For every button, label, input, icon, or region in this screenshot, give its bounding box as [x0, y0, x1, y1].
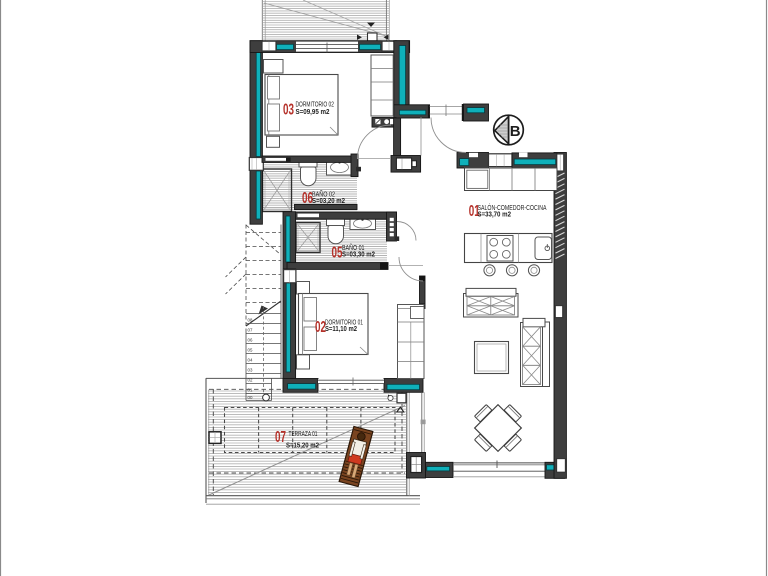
- svg-text:07: 07: [275, 429, 286, 446]
- svg-text:00: 00: [248, 395, 253, 400]
- svg-text:02: 02: [248, 377, 253, 382]
- svg-text:S=03,30 m2: S=03,30 m2: [342, 250, 375, 259]
- svg-text:S=09,95 m2: S=09,95 m2: [296, 107, 330, 116]
- svg-text:01: 01: [248, 387, 253, 392]
- svg-text:05: 05: [248, 347, 253, 352]
- svg-text:TERRAZA 01: TERRAZA 01: [289, 431, 318, 438]
- svg-text:S=11,10 m2: S=11,10 m2: [325, 324, 357, 333]
- svg-text:03: 03: [248, 367, 253, 372]
- svg-text:08: 08: [248, 317, 253, 322]
- svg-text:S=15,20 m2: S=15,20 m2: [286, 440, 319, 449]
- svg-text:03: 03: [283, 102, 294, 119]
- svg-text:B: B: [510, 123, 521, 140]
- svg-text:07: 07: [248, 327, 253, 332]
- svg-text:06: 06: [248, 337, 253, 342]
- svg-text:S=33,70 m2: S=33,70 m2: [478, 209, 512, 218]
- svg-text:04: 04: [248, 357, 253, 362]
- svg-text:S=03,20 m2: S=03,20 m2: [312, 196, 345, 205]
